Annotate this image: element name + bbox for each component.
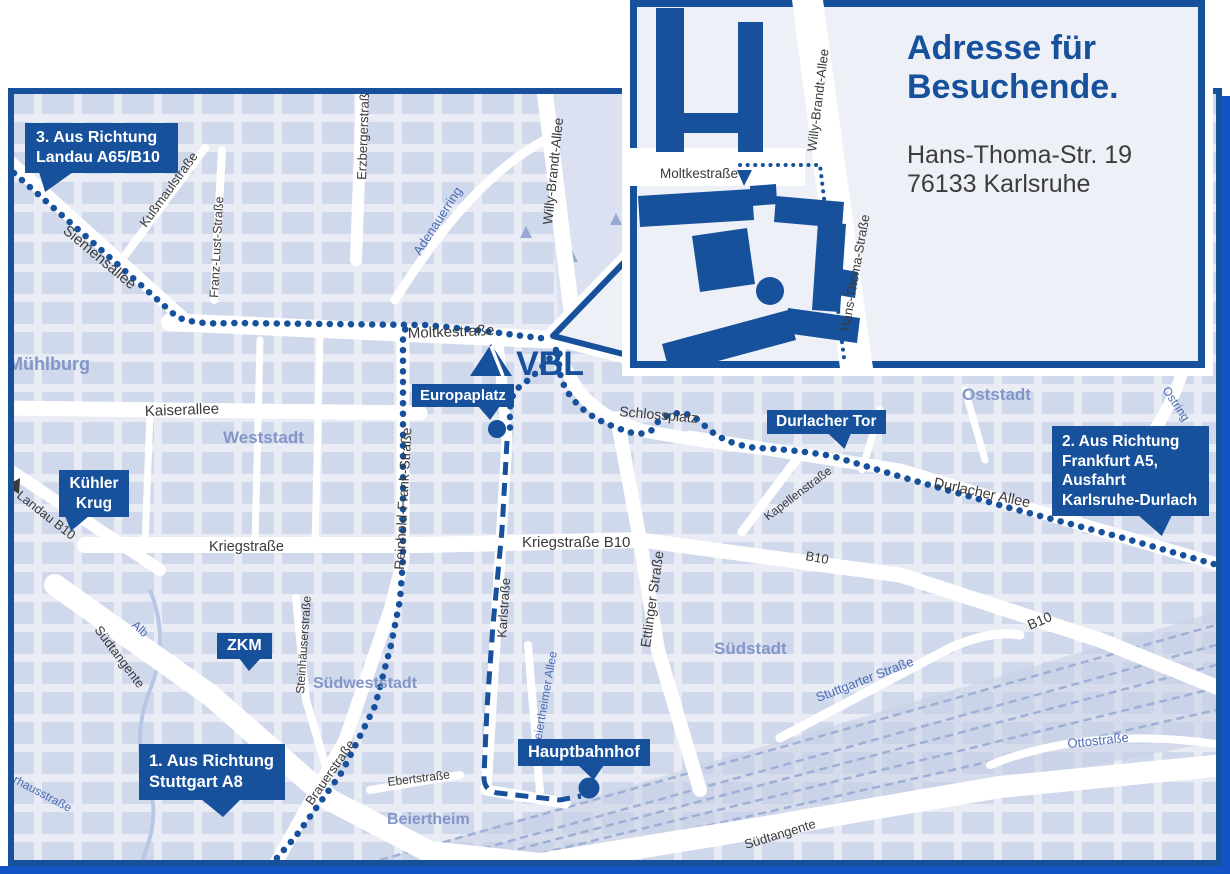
callout-line: Hauptbahnhof bbox=[528, 742, 640, 763]
europaplatz-stop-marker bbox=[488, 420, 506, 438]
area-label-beiertheim: Beiertheim bbox=[387, 811, 470, 828]
vbl-logo-text: VBL bbox=[516, 345, 584, 383]
callout-kuehler-krug: Kühler Krug bbox=[59, 470, 129, 517]
inset-address-line: Hans-Thoma-Str. 19 bbox=[907, 141, 1132, 170]
callout-line: Ausfahrt bbox=[1062, 471, 1199, 491]
area-label-oststadt: Oststadt bbox=[962, 385, 1031, 404]
street-label-kriegstrasse-b10: Kriegstraße B10 bbox=[522, 534, 630, 551]
callout-line: Karlsruhe-Durlach bbox=[1062, 491, 1199, 511]
inset-address: Hans-Thoma-Str. 19 76133 Karlsruhe bbox=[907, 141, 1132, 199]
inset-title: Adresse für Besuchende. bbox=[907, 29, 1119, 107]
callout-line: Stuttgart A8 bbox=[149, 772, 275, 793]
inset-label-moltkestrasse: Moltkestraße bbox=[660, 166, 738, 181]
visitor-address-inset: Moltkestraße Willy-Brandt-Allee Hans-Tho… bbox=[630, 0, 1205, 368]
callout-line: Europaplatz bbox=[420, 386, 506, 405]
inset-title-line: Besuchende. bbox=[907, 68, 1119, 107]
callout-line: Durlacher Tor bbox=[776, 412, 877, 432]
street-label-moltkestrasse: Moltkestraße bbox=[408, 322, 495, 342]
inset-title-line: Adresse für bbox=[907, 29, 1119, 68]
callout-route-1-stuttgart: 1. Aus Richtung Stuttgart A8 bbox=[139, 744, 285, 800]
callout-route-2-frankfurt: 2. Aus Richtung Frankfurt A5, Ausfahrt K… bbox=[1052, 426, 1209, 516]
callout-europaplatz: Europaplatz bbox=[412, 384, 514, 407]
vbl-directions-map: VBL Moltkestraße Siemensallee Kußmaulstr… bbox=[0, 0, 1230, 874]
callout-line: Landau A65/B10 bbox=[36, 148, 167, 168]
inset-address-line: 76133 Karlsruhe bbox=[907, 170, 1132, 199]
callout-hauptbahnhof: Hauptbahnhof bbox=[518, 739, 650, 766]
callout-line: 1. Aus Richtung bbox=[149, 751, 275, 772]
street-label-kaiserallee: Kaiserallee bbox=[145, 400, 220, 420]
callout-line: Krug bbox=[65, 494, 123, 514]
callout-zkm: ZKM bbox=[217, 633, 272, 659]
area-label-muehlburg: Mühlburg bbox=[8, 354, 90, 374]
area-label-suedweststadt: Südweststadt bbox=[313, 675, 418, 692]
callout-line: Kühler bbox=[65, 474, 123, 494]
landau-direction-arrow-icon bbox=[6, 478, 20, 494]
callout-line: ZKM bbox=[227, 636, 262, 656]
area-label-weststadt: Weststadt bbox=[223, 428, 304, 447]
callout-line: 3. Aus Richtung bbox=[36, 128, 167, 148]
callout-line: Frankfurt A5, bbox=[1062, 452, 1199, 472]
street-label-kriegstrasse: Kriegstraße bbox=[209, 539, 284, 555]
callout-durlacher-tor: Durlacher Tor bbox=[767, 410, 886, 434]
callout-line: 2. Aus Richtung bbox=[1062, 432, 1199, 452]
callout-route-3-landau: 3. Aus Richtung Landau A65/B10 bbox=[25, 123, 178, 173]
hauptbahnhof-stop-marker bbox=[579, 778, 600, 799]
area-label-suedstadt: Südstadt bbox=[714, 639, 787, 658]
